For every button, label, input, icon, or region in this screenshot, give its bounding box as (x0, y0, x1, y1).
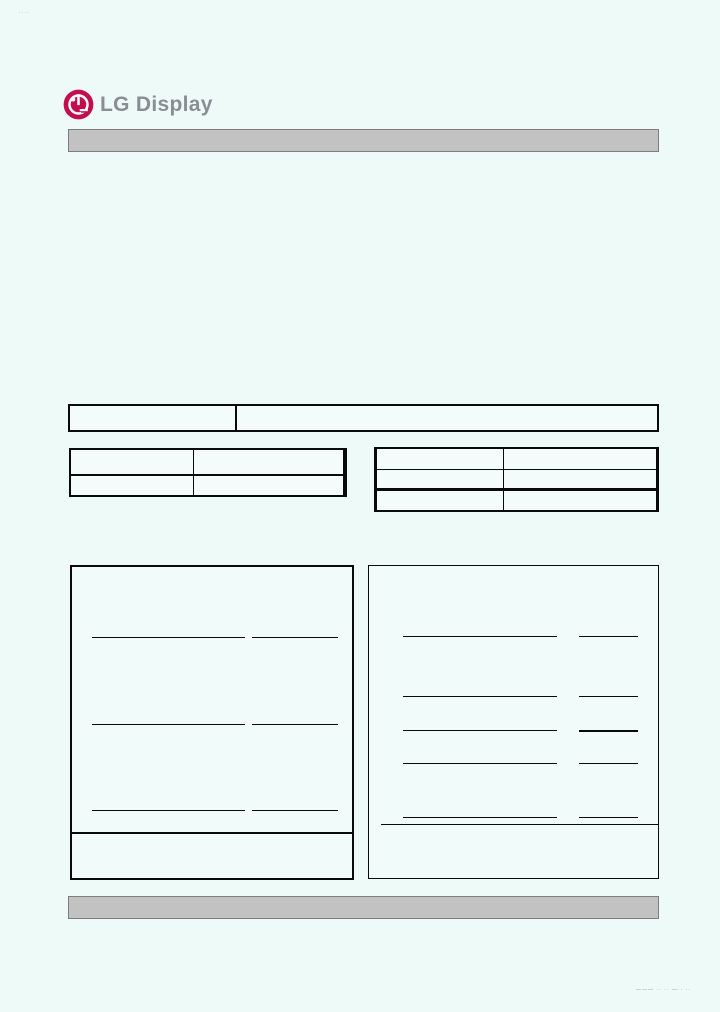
panel-footer-note (72, 834, 352, 878)
signature-line (403, 817, 557, 818)
table-cell (377, 470, 504, 491)
table-cell (504, 491, 656, 510)
signature-line (92, 724, 245, 725)
table-cell (377, 491, 504, 510)
table-cell (194, 476, 343, 495)
date-line (579, 696, 638, 697)
approval-panel-left (70, 565, 354, 880)
lg-symbol-icon (63, 89, 94, 120)
table-cell (71, 450, 194, 476)
top-header-bar (68, 129, 659, 152)
table-cell (504, 449, 656, 470)
signature-line (403, 763, 557, 764)
table-cell (194, 450, 343, 476)
signature-line (92, 810, 245, 811)
logo-text: LG Display (100, 93, 213, 117)
date-line (579, 817, 638, 818)
table-cell (504, 470, 656, 491)
title-table-cell-label (70, 406, 237, 430)
title-table-cell-value (237, 406, 657, 430)
approval-panel-right (368, 565, 659, 879)
date-line (579, 636, 638, 637)
signature-line (403, 696, 557, 697)
scan-artifact-top-left: ···· (19, 11, 30, 16)
info-table-left (69, 448, 347, 497)
table-cell (377, 449, 504, 470)
date-line (252, 810, 338, 811)
info-table-right (374, 447, 659, 512)
signature-line (92, 637, 245, 638)
date-line (579, 730, 638, 732)
title-table (68, 404, 659, 432)
bottom-footer-bar (68, 896, 659, 919)
document-page: ···· LG Display (0, 0, 720, 1012)
date-line (252, 637, 338, 638)
signature-line (403, 730, 557, 731)
panel-footer-note (369, 826, 658, 878)
date-line (252, 724, 338, 725)
signature-line (403, 636, 557, 637)
panel-divider (381, 824, 658, 825)
lg-display-logo: LG Display (63, 89, 213, 120)
date-line (579, 763, 638, 764)
footer-watermark: ――― ·· ·· ―·· ·· (636, 988, 691, 993)
table-cell (71, 476, 194, 495)
